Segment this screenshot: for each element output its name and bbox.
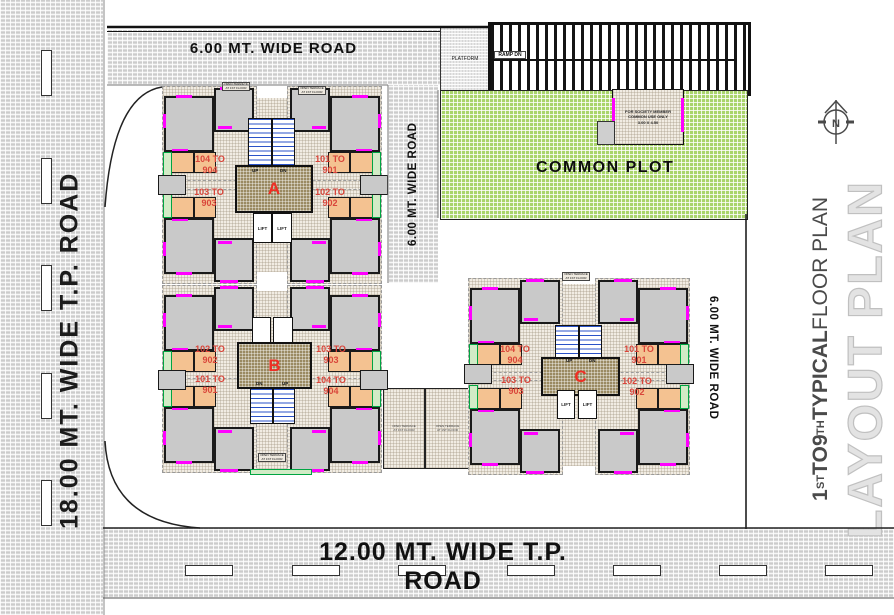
room-block	[470, 288, 520, 344]
window-mark	[176, 294, 192, 297]
lift-c-1: LIFT	[557, 390, 575, 419]
window-mark	[620, 318, 634, 321]
side-room	[666, 364, 694, 384]
lift-a-2: LIFT	[272, 213, 292, 243]
lane-marking	[185, 565, 233, 576]
window-mark	[478, 341, 494, 343]
window-mark	[220, 280, 238, 283]
open-terrace: OPEN TERRACE AT 1ST FLOOR	[383, 388, 425, 469]
window-mark	[378, 114, 381, 128]
window-mark	[306, 286, 324, 289]
unit-range-a-bl: 103 TO 903	[186, 187, 232, 210]
window-mark	[312, 126, 326, 129]
building-b-letter: B	[268, 356, 280, 376]
room-block-peach	[350, 197, 374, 218]
window-mark	[664, 341, 680, 343]
common-plot-label: COMMON PLOT	[536, 159, 674, 177]
road-top-label: 6.00 MT. WIDE ROAD	[107, 40, 440, 57]
unit-range-a-tr: 101 TO 901	[307, 154, 353, 177]
window-mark	[686, 433, 689, 447]
room-block	[598, 429, 638, 473]
title-part: FLOOR PLAN	[809, 197, 833, 330]
window-mark	[352, 95, 368, 98]
balcony-strip	[372, 194, 381, 218]
core-a: A	[235, 165, 313, 213]
lane-marking	[41, 50, 52, 96]
title-part: TO	[809, 446, 833, 475]
room-block	[330, 96, 380, 152]
terrace-note: OPEN TERRACE AT 1ST FLOOR	[222, 82, 250, 91]
balcony-strip	[163, 194, 172, 218]
window-mark	[220, 286, 238, 289]
stair-up-label: UP	[566, 358, 572, 363]
window-mark	[163, 431, 166, 445]
lift-b-1	[252, 317, 271, 345]
balcony-strip	[680, 385, 689, 409]
terrace-note: OPEN TERRACE AT 1ST FLOOR	[258, 453, 286, 462]
window-mark	[352, 461, 368, 464]
window-mark	[352, 272, 368, 275]
common-plot: COMMON PLOT FOR SOCIETY MEMBER COMMON US…	[440, 90, 748, 220]
ramp-label: RAMP DN	[494, 51, 526, 59]
entry-curve	[105, 87, 162, 207]
staircase	[250, 388, 295, 424]
room-block	[164, 407, 214, 463]
unit-range-a-br: 102 TO 902	[307, 187, 353, 210]
window-mark	[356, 348, 372, 350]
room-block	[638, 288, 688, 344]
window-mark	[620, 432, 634, 435]
building-b: B DN UP 102 TO 902 103 TO 903 101 TO 901…	[156, 285, 388, 475]
road-middle: 6.00 MT. WIDE ROAD	[388, 85, 438, 283]
building-a-letter: A	[268, 179, 280, 199]
window-mark	[356, 219, 372, 221]
staircase	[248, 118, 295, 167]
window-mark	[352, 294, 368, 297]
window-mark	[664, 410, 680, 412]
window-mark	[172, 348, 188, 350]
room-block	[470, 409, 520, 465]
window-mark	[378, 313, 381, 327]
window-mark	[163, 242, 166, 256]
lane-marking	[825, 565, 873, 576]
window-mark	[312, 430, 326, 433]
window-mark	[176, 272, 192, 275]
window-mark	[312, 325, 326, 328]
window-mark	[356, 149, 372, 151]
window-mark	[172, 219, 188, 221]
stair-dn-label: DN	[256, 381, 263, 386]
window-mark	[218, 241, 232, 244]
building-a: UP DN A LIFT LIFT 104 TO 904 101 TO 901 …	[156, 84, 388, 286]
room-block	[290, 238, 330, 282]
unit-range-c-br: 102 TO 902	[614, 376, 660, 399]
unit-range-c-bl: 103 TO 903	[493, 375, 539, 398]
terrace-note: OPEN TERRACE AT 1ST FLOOR	[391, 425, 417, 433]
window-mark	[614, 471, 632, 474]
road-bottom-label: 12.00 MT. WIDE T.P. ROAD	[303, 538, 583, 596]
window-mark	[526, 471, 544, 474]
road-bottom: 12.00 MT. WIDE T.P. ROAD	[103, 528, 894, 598]
road-left-label: 18.00 MT. WIDE T.P. ROAD	[50, 115, 90, 585]
window-mark	[469, 306, 472, 320]
lift-a-1: LIFT	[253, 213, 272, 243]
window-mark	[524, 432, 538, 435]
window-mark	[660, 463, 676, 466]
window-mark	[163, 114, 166, 128]
title-part: 1	[809, 489, 833, 501]
room-block-peach	[658, 388, 682, 409]
title-part: TH	[815, 420, 827, 435]
title-part: ST	[815, 475, 827, 489]
window-mark	[478, 410, 494, 412]
unit-range-c-tl: 104 TO 904	[492, 344, 538, 367]
room-block	[164, 96, 214, 152]
balcony-strip	[163, 152, 172, 176]
window-mark	[172, 149, 188, 151]
side-room	[158, 175, 186, 195]
core-b: B	[237, 342, 312, 389]
stair-up-label: UP	[252, 168, 258, 173]
sheet-title-layout-plan: LAYOUT PLAN	[840, 202, 892, 518]
window-mark	[378, 242, 381, 256]
window-mark	[218, 325, 232, 328]
side-room	[158, 370, 186, 390]
room-block	[520, 429, 560, 473]
building-c-letter: C	[574, 367, 586, 387]
north-letter: N	[832, 118, 840, 130]
title-part: TYPICAL	[809, 330, 833, 420]
side-room	[360, 370, 388, 390]
window-mark	[526, 279, 544, 282]
window-mark	[681, 98, 684, 132]
window-mark	[172, 408, 188, 410]
room-block	[214, 427, 254, 471]
window-mark	[469, 433, 472, 447]
stair-dn-label: DN	[280, 168, 287, 173]
unit-range-a-tl: 104 TO 904	[187, 154, 233, 177]
window-mark	[218, 126, 232, 129]
north-arrow-icon	[818, 100, 854, 144]
balcony-strip	[372, 152, 381, 176]
window-mark	[176, 461, 192, 464]
side-room	[360, 175, 388, 195]
window-mark	[163, 313, 166, 327]
window-mark	[660, 287, 676, 290]
stair-up-label: UP	[282, 381, 288, 386]
society-common-box: FOR SOCIETY MEMBER COMMON USE ONLY 3.00 …	[612, 89, 684, 145]
unit-range-b-bl: 101 TO 901	[187, 374, 233, 397]
lane-marking	[613, 565, 661, 576]
road-middle-label: 6.00 MT. WIDE ROAD	[388, 85, 438, 283]
room-block	[214, 238, 254, 282]
lift-c-2: LIFT	[578, 390, 597, 419]
road-right-label: 6.00 MT. WIDE ROAD	[702, 296, 724, 431]
balcony-strip	[469, 385, 478, 409]
room-block	[330, 218, 380, 274]
window-mark	[312, 241, 326, 244]
window-mark	[218, 430, 232, 433]
room-block	[290, 427, 330, 471]
staircase	[555, 325, 602, 359]
window-mark	[614, 279, 632, 282]
terrace-note: OPEN TERRACE AT 1ST FLOOR	[298, 86, 326, 95]
title-part: 9	[809, 435, 833, 447]
platform-label: PLATFORM	[441, 56, 489, 62]
unit-range-b-br: 104 TO 904	[308, 375, 354, 398]
room-block	[330, 407, 380, 463]
terrace-note: OPEN TERRACE AT 1ST FLOOR	[435, 425, 461, 433]
room-block-peach	[350, 152, 374, 173]
window-mark	[306, 280, 324, 283]
lane-marking	[719, 565, 767, 576]
lift-b-2	[273, 317, 293, 345]
society-box-line3: 3.00 X 4.50	[638, 120, 658, 126]
window-mark	[686, 306, 689, 320]
side-room	[464, 364, 492, 384]
site-layout-plan: 18.00 MT. WIDE T.P. ROAD 12.00 MT. WIDE …	[0, 0, 894, 615]
unit-range-b-tr: 103 TO 903	[308, 344, 354, 367]
unit-range-c-tr: 101 TO 901	[616, 344, 662, 367]
window-mark	[378, 431, 381, 445]
ramp-divider	[491, 59, 735, 61]
utility-block	[597, 121, 615, 145]
room-block	[164, 295, 214, 351]
window-mark	[524, 318, 538, 321]
window-mark	[176, 95, 192, 98]
road-top: 6.00 MT. WIDE ROAD	[107, 30, 440, 85]
terrace-note: OPEN TERRACE AT 1ST FLOOR	[562, 272, 590, 281]
stair-dn-label: DN	[589, 358, 596, 363]
room-block	[330, 295, 380, 351]
ramp: RAMP DN	[488, 22, 751, 96]
room-block	[638, 409, 688, 465]
room-block	[164, 218, 214, 274]
balcony-strip	[250, 469, 312, 475]
window-mark	[220, 469, 238, 472]
window-mark	[356, 408, 372, 410]
sheet-title-floor-plan: 1ST TO 9TH TYPICAL FLOOR PLAN	[804, 188, 838, 510]
window-mark	[482, 287, 498, 290]
window-mark	[482, 463, 498, 466]
unit-range-b-tl: 102 TO 902	[187, 344, 233, 367]
building-c: UP DN C LIFT LIFT 104 TO 904 101 TO 901 …	[458, 272, 698, 477]
